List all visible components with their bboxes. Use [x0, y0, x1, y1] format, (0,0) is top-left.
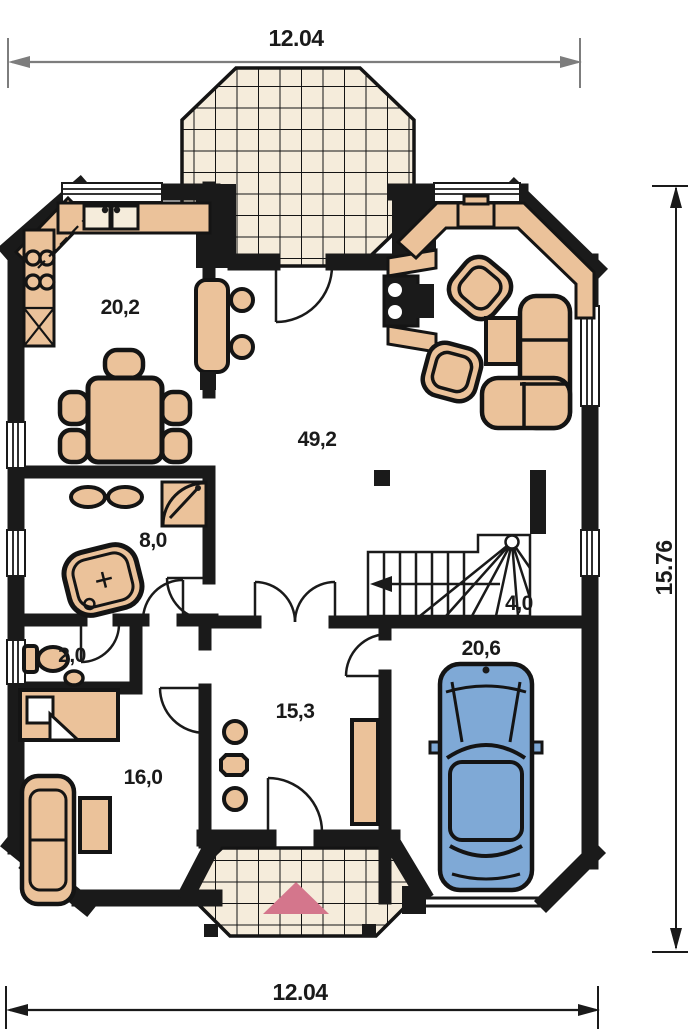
stool: [231, 289, 253, 311]
dimension-right-label: 15.76: [651, 540, 677, 595]
room-label-stairs: 4,0: [505, 592, 533, 615]
dining-chair: [162, 430, 190, 462]
fireplace-wing-bottom: [388, 326, 436, 352]
hall-tall-cabinet-foot: [200, 372, 216, 390]
fireplace-body: [384, 276, 418, 326]
kitchen-sink: [84, 206, 138, 229]
fireplace: [384, 250, 436, 352]
wall-stub-stairs: [530, 470, 546, 534]
shower: [162, 482, 206, 526]
hall-stool: [224, 721, 246, 743]
dimension-bottom-label: 12.04: [272, 979, 328, 1005]
window-living-right: [581, 306, 599, 406]
bed: [20, 690, 118, 740]
car: [430, 664, 542, 890]
room-label-room: 16,0: [124, 766, 163, 789]
wc-basin: [65, 671, 83, 685]
room-label-wc: 2,0: [58, 644, 86, 667]
dimension-right: 15.76: [651, 186, 688, 952]
room-label-kitchen: 20,2: [101, 296, 140, 319]
dimension-bottom-arrow-right: [578, 1004, 600, 1016]
fireplace-knob: [388, 305, 402, 319]
floor-plan: 20,2 49,2 8,0 4,0 2,0 20,6 15,3 16,0 12.…: [0, 0, 688, 1029]
window-stairs-right: [581, 530, 599, 576]
hall-tall-cabinet: [196, 280, 228, 372]
coffee-table: [486, 318, 518, 364]
hall-stool-octagon: [221, 755, 247, 775]
dimension-top-label: 12.04: [268, 25, 324, 51]
small-sofa: [22, 776, 74, 904]
porch-foot-left: [204, 924, 218, 937]
door-double-hall: [255, 582, 335, 622]
garage-door: [424, 898, 548, 906]
dining-chair: [60, 430, 88, 462]
hall-stool: [224, 788, 246, 810]
room-label-living: 49,2: [298, 428, 337, 451]
dining-set: [60, 350, 190, 462]
door-terrace: [276, 266, 332, 322]
window-bathroom-left: [7, 530, 25, 576]
hall-wardrobe: [352, 720, 378, 824]
door-entrance: [268, 778, 322, 832]
sink-tap-right: [114, 207, 120, 213]
room-label-bathroom: 8,0: [139, 529, 167, 552]
stairs-newel-post: [506, 536, 519, 549]
wall-chamfer-bottom-right: [546, 853, 594, 901]
dimension-bottom-arrow-left: [6, 1004, 28, 1016]
dimension-right-arrow-bottom: [670, 928, 682, 950]
car-roof: [450, 762, 522, 840]
window-kitchen-top: [62, 183, 162, 202]
structural-column: [374, 470, 390, 486]
tv-cabinet: [458, 196, 494, 227]
dining-chair: [60, 392, 88, 424]
fireplace-firebox: [416, 284, 434, 318]
dimension-right-arrow-top: [670, 186, 682, 208]
side-table: [80, 798, 110, 852]
stool: [231, 336, 253, 358]
sink-tap-left: [102, 207, 108, 213]
porch-foot-right: [362, 924, 376, 937]
wall-pillar-garage-door: [402, 886, 426, 914]
dimension-top-arrow-right: [560, 56, 582, 68]
dining-chair: [162, 392, 190, 424]
car-antenna: [483, 667, 490, 674]
bathtub: [59, 540, 146, 620]
dining-table: [88, 378, 162, 462]
stairs-direction-arrowhead: [370, 576, 392, 592]
door-wc: [81, 624, 119, 662]
dimension-bottom: 12.04: [6, 979, 600, 1029]
fireplace-knob: [388, 283, 402, 297]
armchair: [442, 250, 518, 326]
dining-chair: [105, 350, 143, 378]
room-label-garage: 20,6: [462, 637, 501, 660]
wash-basins: [71, 487, 142, 507]
window-kitchen-left: [7, 422, 25, 468]
room-label-hall: 15,3: [276, 700, 315, 723]
dimension-top-arrow-left: [8, 56, 30, 68]
door-room: [160, 688, 205, 733]
